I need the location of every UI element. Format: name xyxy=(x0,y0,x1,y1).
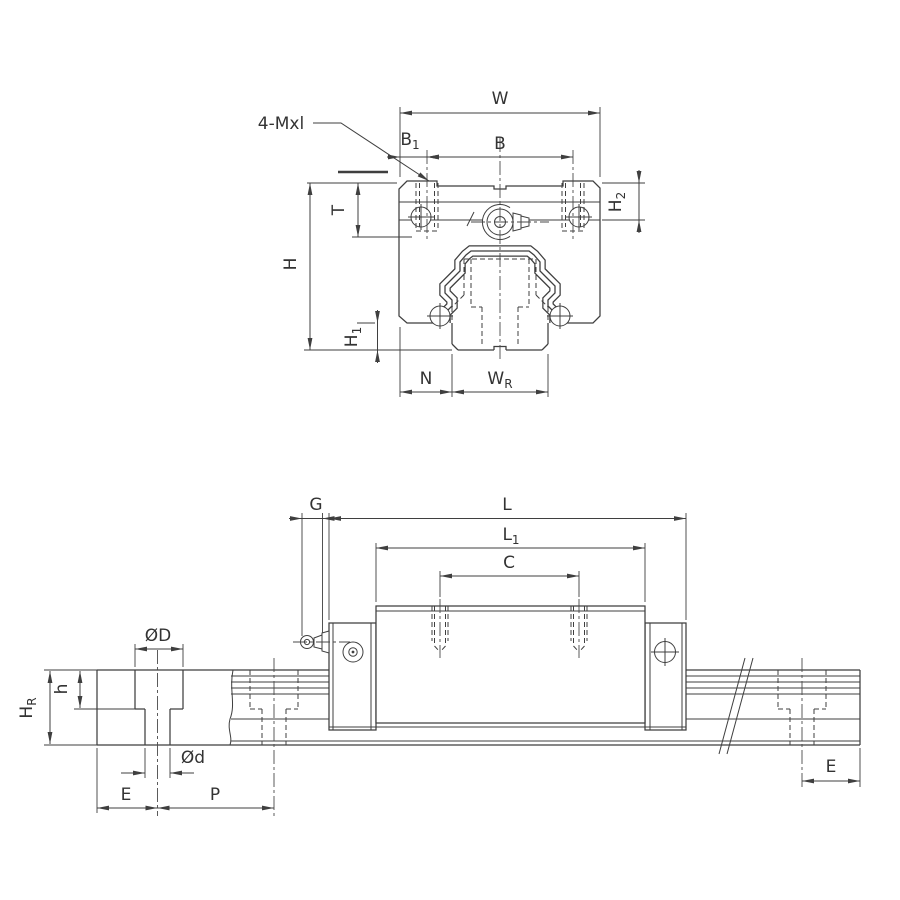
grease-nipple-front xyxy=(467,205,549,240)
dim-label-w: W xyxy=(492,89,509,109)
dim-label-h: H xyxy=(281,258,301,271)
dim-label-b1: B1 xyxy=(400,130,419,152)
dim-label-n: N xyxy=(420,369,433,389)
dim-label-h2: H2 xyxy=(606,192,628,212)
carriage-side xyxy=(293,599,686,730)
left-end-cap xyxy=(329,623,376,730)
technical-drawing-page: W B B1 H2 T H xyxy=(0,0,900,900)
dim-label-h1: H1 xyxy=(342,327,364,347)
dim-label-hr: HR xyxy=(17,697,39,718)
dim-label-h-depth: h xyxy=(52,684,72,695)
dim-label-b: B xyxy=(494,134,506,154)
dim-label-t: T xyxy=(329,204,349,216)
dim-label-wr: WR xyxy=(487,369,512,391)
screw-top-right-icon xyxy=(566,204,592,230)
dim-label-od-small: Ød xyxy=(181,748,205,768)
linear-guide-drawing: W B B1 H2 T H xyxy=(0,0,900,900)
dim-label-e-left: E xyxy=(121,785,132,805)
dim-label-od: ØD xyxy=(145,626,171,646)
rail-bolt-hole-section xyxy=(135,650,183,816)
carriage-body-side xyxy=(376,606,645,723)
rail-break-lines xyxy=(719,658,753,754)
dim-label-g: G xyxy=(309,495,322,515)
screw-top-left-icon xyxy=(408,204,434,230)
dim-label-p: P xyxy=(210,785,220,805)
grease-port-icon xyxy=(343,642,363,662)
dim-label-l1: L1 xyxy=(502,525,519,547)
section-break-wavy-line xyxy=(229,670,233,745)
front-view: W B B1 H2 T H xyxy=(258,89,645,397)
front-dimensions: W B B1 H2 T H xyxy=(258,89,645,397)
dim-label-l: L xyxy=(502,495,512,515)
side-view: G L L1 C ØD h HR Ød E xyxy=(17,495,860,816)
thread-note-label: 4-Mxl xyxy=(258,114,304,134)
rail-bolt-hole-hidden-right xyxy=(778,658,826,789)
dim-label-e-right: E xyxy=(826,757,837,777)
dim-label-c: C xyxy=(503,553,515,573)
